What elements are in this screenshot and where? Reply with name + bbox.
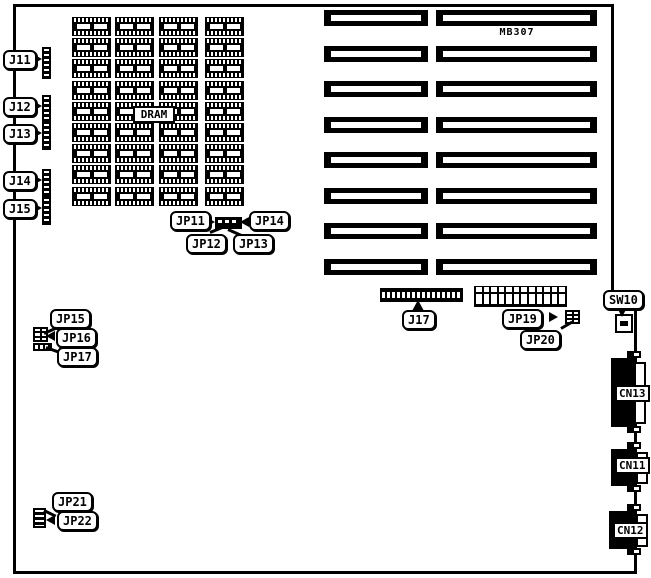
expansion-slot bbox=[436, 46, 597, 62]
expansion-slot bbox=[324, 259, 428, 275]
dram-chip bbox=[115, 81, 154, 100]
callout-cn11: CN11 bbox=[615, 457, 650, 474]
dram-chip bbox=[205, 123, 244, 142]
leader-line bbox=[560, 321, 573, 330]
callout-j17: J17 bbox=[402, 310, 436, 330]
expansion-slot bbox=[436, 188, 597, 204]
connector-jp19-area bbox=[474, 286, 567, 307]
mounting-tab bbox=[627, 504, 641, 511]
callout-j11: J11 bbox=[3, 50, 37, 70]
dram-chip bbox=[159, 81, 198, 100]
pin-header-j12 bbox=[42, 95, 51, 123]
dram-chip bbox=[72, 123, 111, 142]
callout-jp14: JP14 bbox=[249, 211, 290, 231]
dram-chip bbox=[205, 144, 244, 163]
callout-j14: J14 bbox=[3, 171, 37, 191]
callout-jp20: JP20 bbox=[520, 330, 561, 350]
dram-chip bbox=[115, 187, 154, 206]
mounting-tab bbox=[627, 426, 641, 433]
callout-sw10: SW10 bbox=[603, 290, 644, 310]
mounting-tab bbox=[627, 351, 641, 358]
callout-cn13: CN13 bbox=[615, 385, 650, 402]
expansion-slot bbox=[436, 117, 597, 133]
dram-chip bbox=[115, 123, 154, 142]
board-edge-left bbox=[13, 4, 16, 574]
expansion-slot bbox=[436, 81, 597, 97]
dram-chip bbox=[72, 38, 111, 57]
pointer-left-icon bbox=[46, 331, 55, 341]
callout-jp13: JP13 bbox=[233, 234, 274, 254]
callout-jp21: JP21 bbox=[52, 492, 93, 512]
motherboard-diagram: MB307 DRAM J11 J12 J13 J14 J15 JP11 JP14… bbox=[0, 0, 651, 578]
pointer-left-icon bbox=[46, 515, 55, 525]
dram-chip bbox=[72, 187, 111, 206]
dram-chip bbox=[205, 38, 244, 57]
dram-chip bbox=[205, 81, 244, 100]
dram-chip bbox=[72, 81, 111, 100]
expansion-slot bbox=[436, 152, 597, 168]
dram-column bbox=[72, 17, 111, 206]
callout-jp15: JP15 bbox=[50, 309, 91, 329]
callout-jp12: JP12 bbox=[186, 234, 227, 254]
expansion-slot bbox=[324, 46, 428, 62]
callout-jp16: JP16 bbox=[56, 328, 97, 348]
callout-jp19: JP19 bbox=[502, 309, 543, 329]
expansion-slot bbox=[436, 259, 597, 275]
dram-chip bbox=[205, 187, 244, 206]
dram-chip bbox=[159, 144, 198, 163]
mounting-tab bbox=[627, 548, 641, 555]
connector-cell-row bbox=[476, 294, 565, 304]
expansion-slot bbox=[324, 152, 428, 168]
mounting-tab bbox=[627, 485, 641, 492]
dram-chip bbox=[72, 165, 111, 184]
expansion-slot bbox=[324, 188, 428, 204]
dram-chip bbox=[72, 17, 111, 36]
expansion-slot bbox=[324, 10, 428, 26]
dram-chip bbox=[72, 59, 111, 78]
connector-cell-row bbox=[476, 287, 565, 292]
mounting-tab bbox=[627, 442, 641, 449]
dram-chip bbox=[115, 59, 154, 78]
pin-header-j14 bbox=[42, 169, 51, 197]
board-edge-top bbox=[13, 4, 614, 7]
pin-header-j15 bbox=[42, 197, 51, 225]
callout-jp11: JP11 bbox=[170, 211, 211, 231]
dram-chip bbox=[115, 144, 154, 163]
pin-header-j13 bbox=[42, 122, 51, 150]
expansion-slot bbox=[436, 10, 597, 26]
callout-j15: J15 bbox=[3, 199, 37, 219]
dram-chip bbox=[159, 187, 198, 206]
callout-jp22: JP22 bbox=[57, 511, 98, 531]
board-edge-bottom bbox=[13, 571, 637, 574]
pointer-right-icon bbox=[549, 312, 558, 322]
expansion-slot bbox=[324, 223, 428, 239]
dram-chip bbox=[205, 165, 244, 184]
dram-chip bbox=[205, 102, 244, 121]
dram-chip bbox=[72, 102, 111, 121]
expansion-slot bbox=[324, 117, 428, 133]
dram-column bbox=[205, 17, 244, 206]
board-edge-right-upper bbox=[611, 4, 614, 300]
dram-chip bbox=[159, 123, 198, 142]
pointer-left-icon bbox=[240, 217, 249, 227]
callout-j13: J13 bbox=[3, 124, 37, 144]
dram-chip bbox=[159, 165, 198, 184]
dram-label: DRAM bbox=[133, 106, 175, 123]
callout-jp17: JP17 bbox=[57, 347, 98, 367]
dram-chip bbox=[159, 38, 198, 57]
dram-chip bbox=[159, 17, 198, 36]
callout-j12: J12 bbox=[3, 97, 37, 117]
dram-chip bbox=[205, 17, 244, 36]
dram-chip bbox=[72, 144, 111, 163]
expansion-slot bbox=[436, 223, 597, 239]
expansion-slot bbox=[324, 81, 428, 97]
callout-cn12: CN12 bbox=[613, 522, 648, 539]
dram-chip bbox=[115, 17, 154, 36]
board-model-label: MB307 bbox=[482, 27, 552, 38]
dram-chip bbox=[159, 59, 198, 78]
pin-header-j11 bbox=[42, 47, 51, 79]
dram-chip bbox=[115, 165, 154, 184]
dram-chip bbox=[115, 38, 154, 57]
dram-chip bbox=[205, 59, 244, 78]
